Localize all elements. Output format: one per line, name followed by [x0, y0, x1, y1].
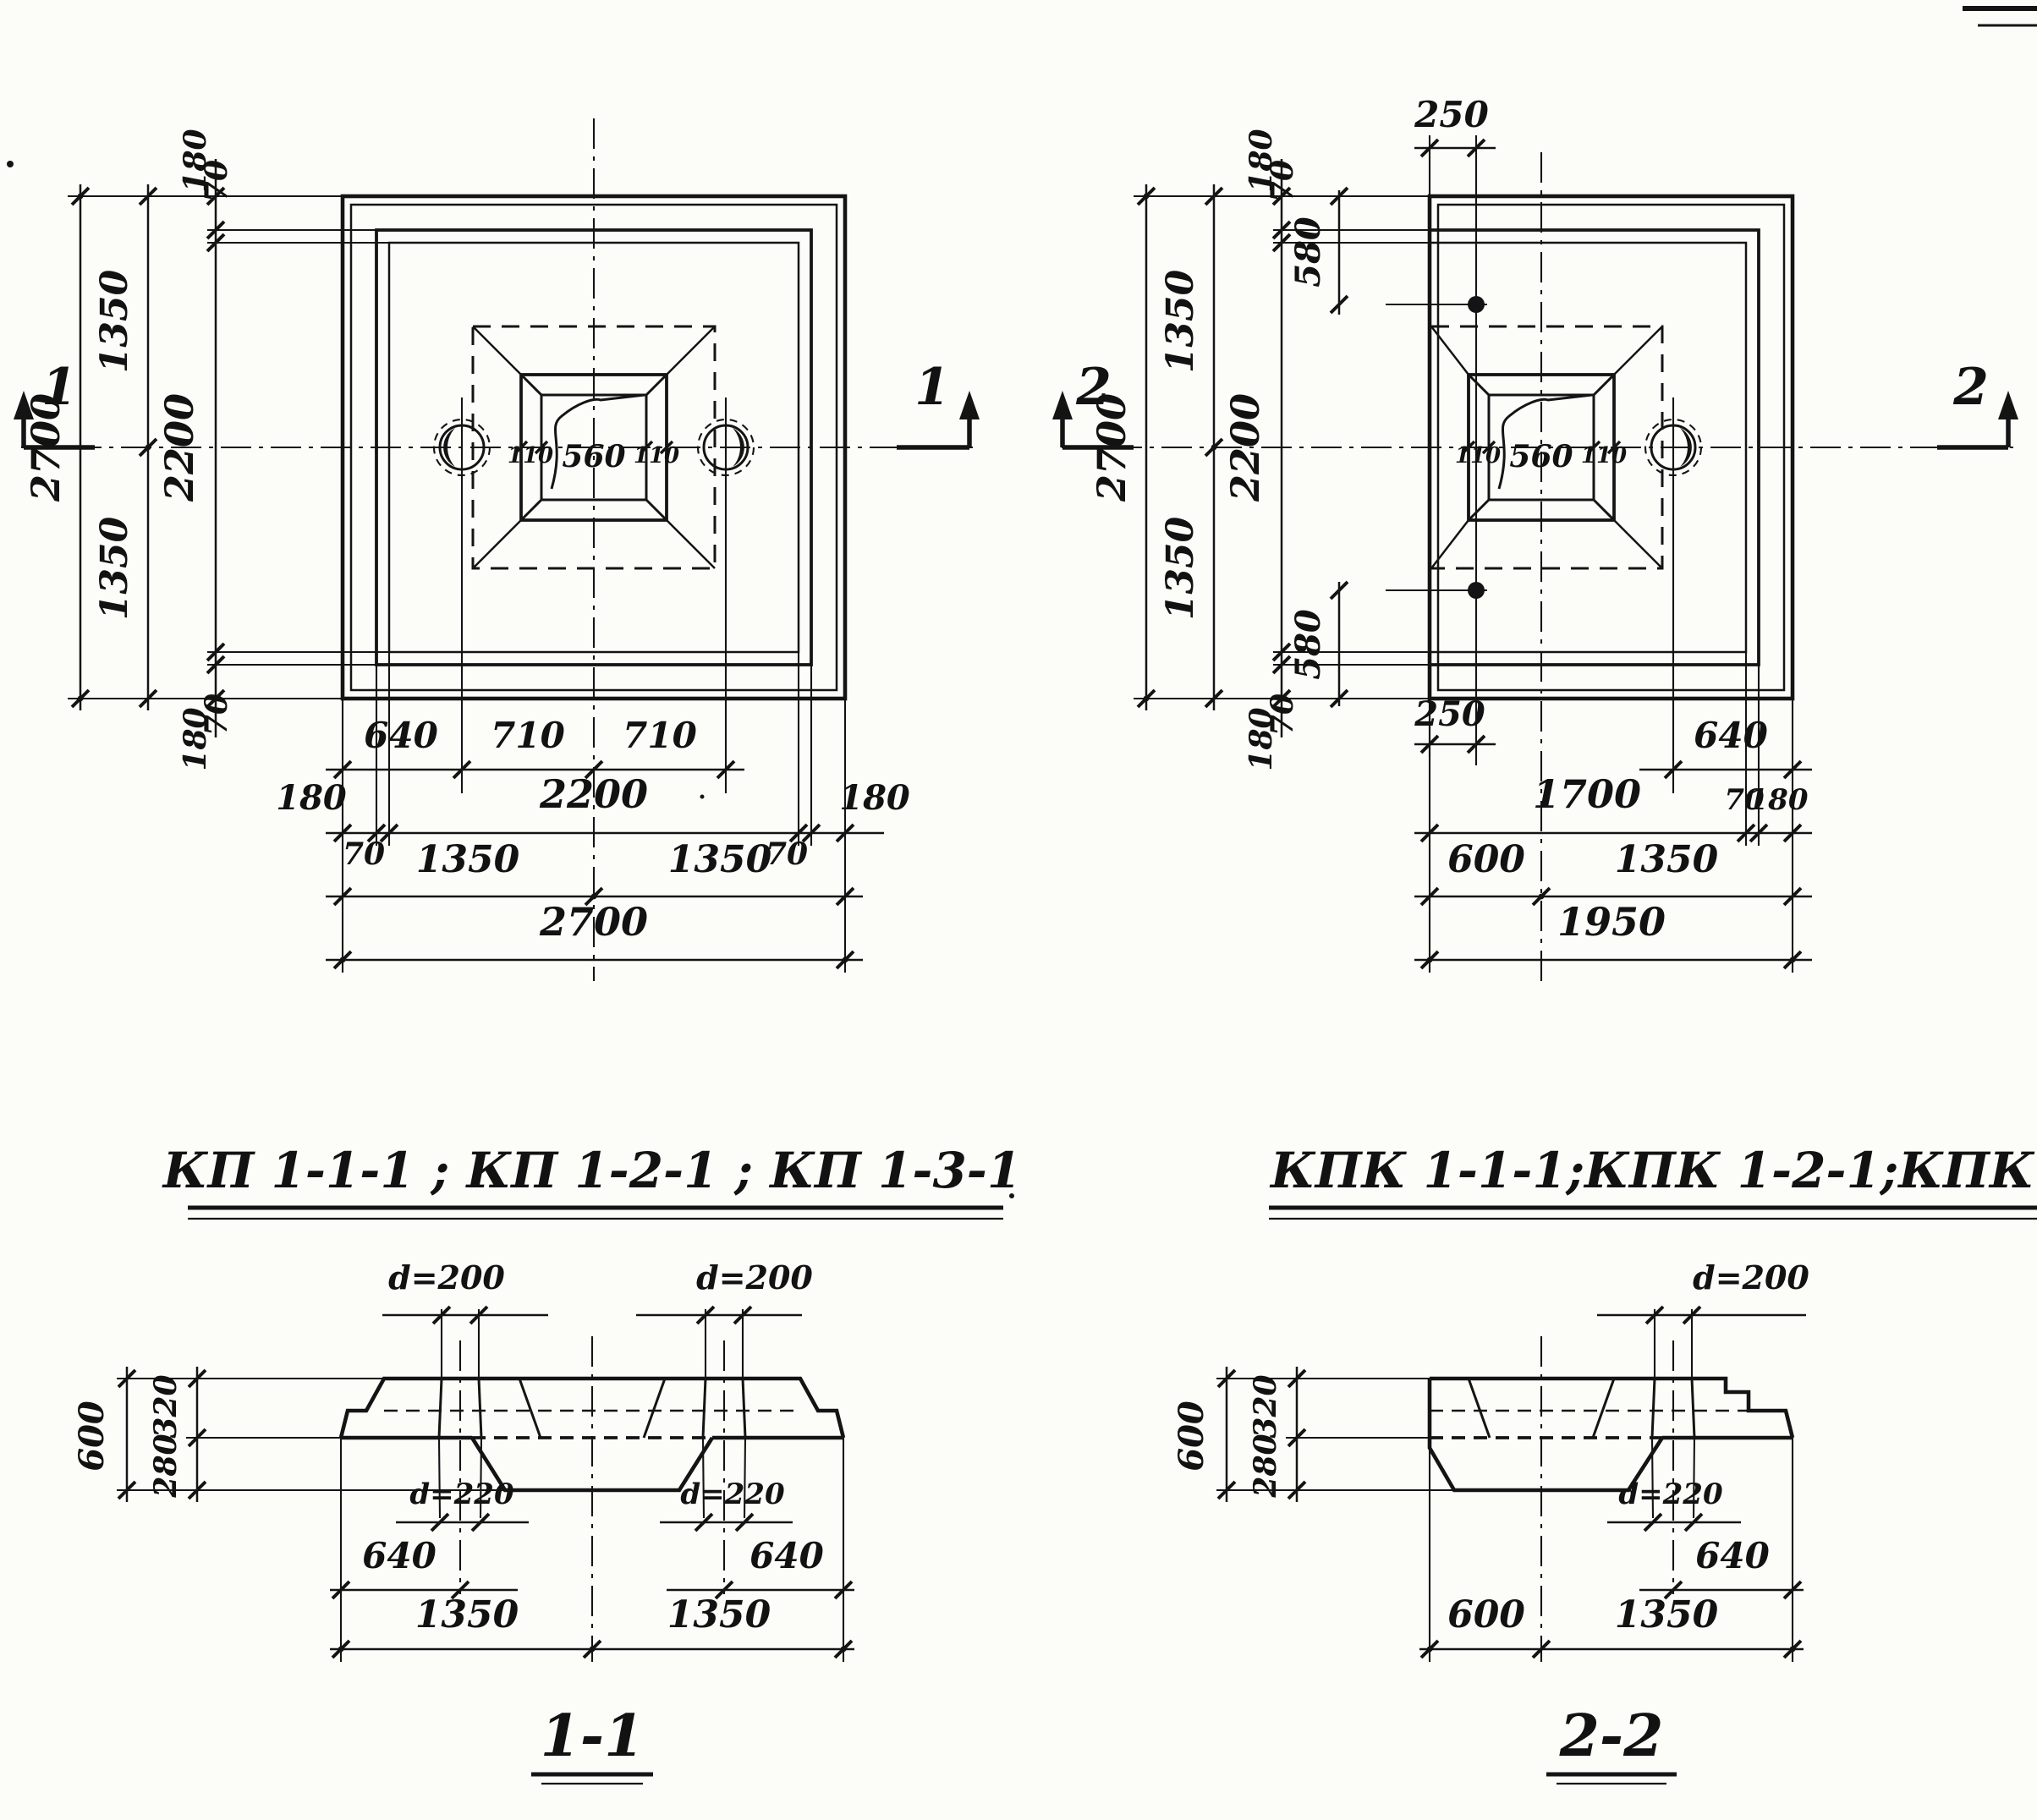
dim-label: 560 [1509, 439, 1573, 474]
dim-label: 560 [562, 439, 625, 474]
dim-label: 640 [364, 715, 438, 756]
kp-title: КП 1-1-1 ; КП 1-2-1 ; КП 1-3-1 [162, 1142, 1022, 1199]
dim-label: 70 [766, 836, 808, 872]
kpk-title-block: КПК 1-1-1;КПК 1-2-1;КПК 1-3-1 [1269, 1142, 2037, 1219]
dim-label: 2200 [156, 393, 202, 502]
dim-label: 2 [1075, 358, 1112, 417]
dim-label: 2200 [539, 771, 648, 817]
s22-cut-edge-and-frustum [1430, 1379, 1662, 1490]
dim-label: 1350 [668, 838, 772, 881]
dim-label: 1350 [93, 269, 136, 373]
dim-label: 640 [362, 1535, 436, 1576]
dim-label: d=220 [1618, 1477, 1723, 1511]
dim-label: 70 [343, 836, 385, 872]
s11-sleeve-left [439, 1309, 481, 1594]
dim-label: 600 [72, 1401, 112, 1472]
dim-label: 320 [148, 1374, 184, 1438]
dim-label: 710 [623, 715, 697, 756]
dim-label: 180 [839, 778, 910, 818]
dim-label: 1350 [416, 838, 520, 881]
dim-label: 320 [1248, 1374, 1283, 1438]
dim-label: 180 [178, 707, 213, 770]
dim-label: d=200 [388, 1258, 505, 1296]
dim-label: 600 [1447, 838, 1525, 881]
dim-label: 180 [1244, 707, 1279, 770]
dim-label: 1350 [667, 1593, 771, 1636]
foundation-drawing: КП 1-1-1 ; КП 1-2-1 ; КП 1-3-1 КПК 1-1-1… [0, 0, 2037, 1820]
dim-label: 1350 [415, 1593, 519, 1636]
dim-label: 1350 [1159, 269, 1202, 373]
s22-sleeve [1652, 1309, 1694, 1594]
dim-label: 1350 [1615, 1593, 1719, 1636]
dim-label: 580 [1288, 217, 1328, 288]
section-1-1: 1-1 [117, 1307, 854, 1784]
s22-d200-dim [1597, 1307, 1806, 1324]
dim-label: 710 [491, 715, 565, 756]
dim-label: 280 [1248, 1434, 1283, 1498]
kpk-title: КПК 1-1-1;КПК 1-2-1;КПК 1-3-1 [1269, 1142, 2037, 1199]
dim-label: 2700 [539, 899, 648, 945]
dim-label: 640 [1694, 715, 1768, 756]
drawing-sheet: КП 1-1-1 ; КП 1-2-1 ; КП 1-3-1 КПК 1-1-1… [0, 0, 2037, 1820]
dim-label: 600 [1172, 1401, 1211, 1472]
dim-label: 110 [1455, 443, 1501, 469]
s11-sleeve-right [703, 1309, 745, 1594]
s11-title-block: 1-1 [531, 1702, 653, 1784]
dim-label: 70 [199, 160, 234, 202]
section-1-1-title: 1-1 [541, 1702, 645, 1770]
dim-label: 180 [1749, 783, 1809, 817]
s11-d200-dims [382, 1307, 802, 1324]
dim-label: 1350 [1615, 838, 1719, 881]
dim-label: 2 [1952, 358, 1989, 417]
kpk-top-250 [1414, 135, 1496, 196]
dim-label: 1350 [1159, 516, 1202, 620]
dim-label: 110 [508, 443, 553, 469]
dim-label: 1 [41, 358, 77, 417]
dim-label: d=220 [409, 1477, 514, 1511]
dim-label: 70 [1265, 160, 1300, 202]
dim-label: 110 [634, 443, 679, 469]
dim-label: 640 [749, 1535, 824, 1576]
scan-artifacts [7, 8, 2037, 1198]
s22-title-block: 2-2 [1546, 1702, 1677, 1784]
dim-label: 180 [276, 778, 347, 818]
dim-label: d=220 [680, 1477, 785, 1511]
dim-label: 250 [1414, 94, 1489, 135]
dim-label: 2200 [1222, 393, 1268, 502]
dim-label: 1950 [1557, 899, 1666, 945]
kp-title-block: КП 1-1-1 ; КП 1-2-1 ; КП 1-3-1 [162, 1142, 1022, 1219]
dim-label: d=200 [1693, 1258, 1809, 1296]
dim-label: 250 [1414, 694, 1485, 734]
s11-d220-dims [396, 1514, 793, 1531]
dim-label: 280 [148, 1434, 184, 1498]
dim-label: d=200 [696, 1258, 813, 1296]
dim-label: 600 [1447, 1593, 1525, 1636]
dim-label: 640 [1695, 1535, 1770, 1576]
dim-label: 110 [1581, 443, 1627, 469]
dim-label: 1700 [1533, 771, 1641, 817]
dim-label: 1 [914, 358, 950, 417]
dim-label: 580 [1288, 609, 1328, 680]
section-2-2-title: 2-2 [1559, 1702, 1664, 1770]
dim-label: 1350 [93, 516, 136, 620]
